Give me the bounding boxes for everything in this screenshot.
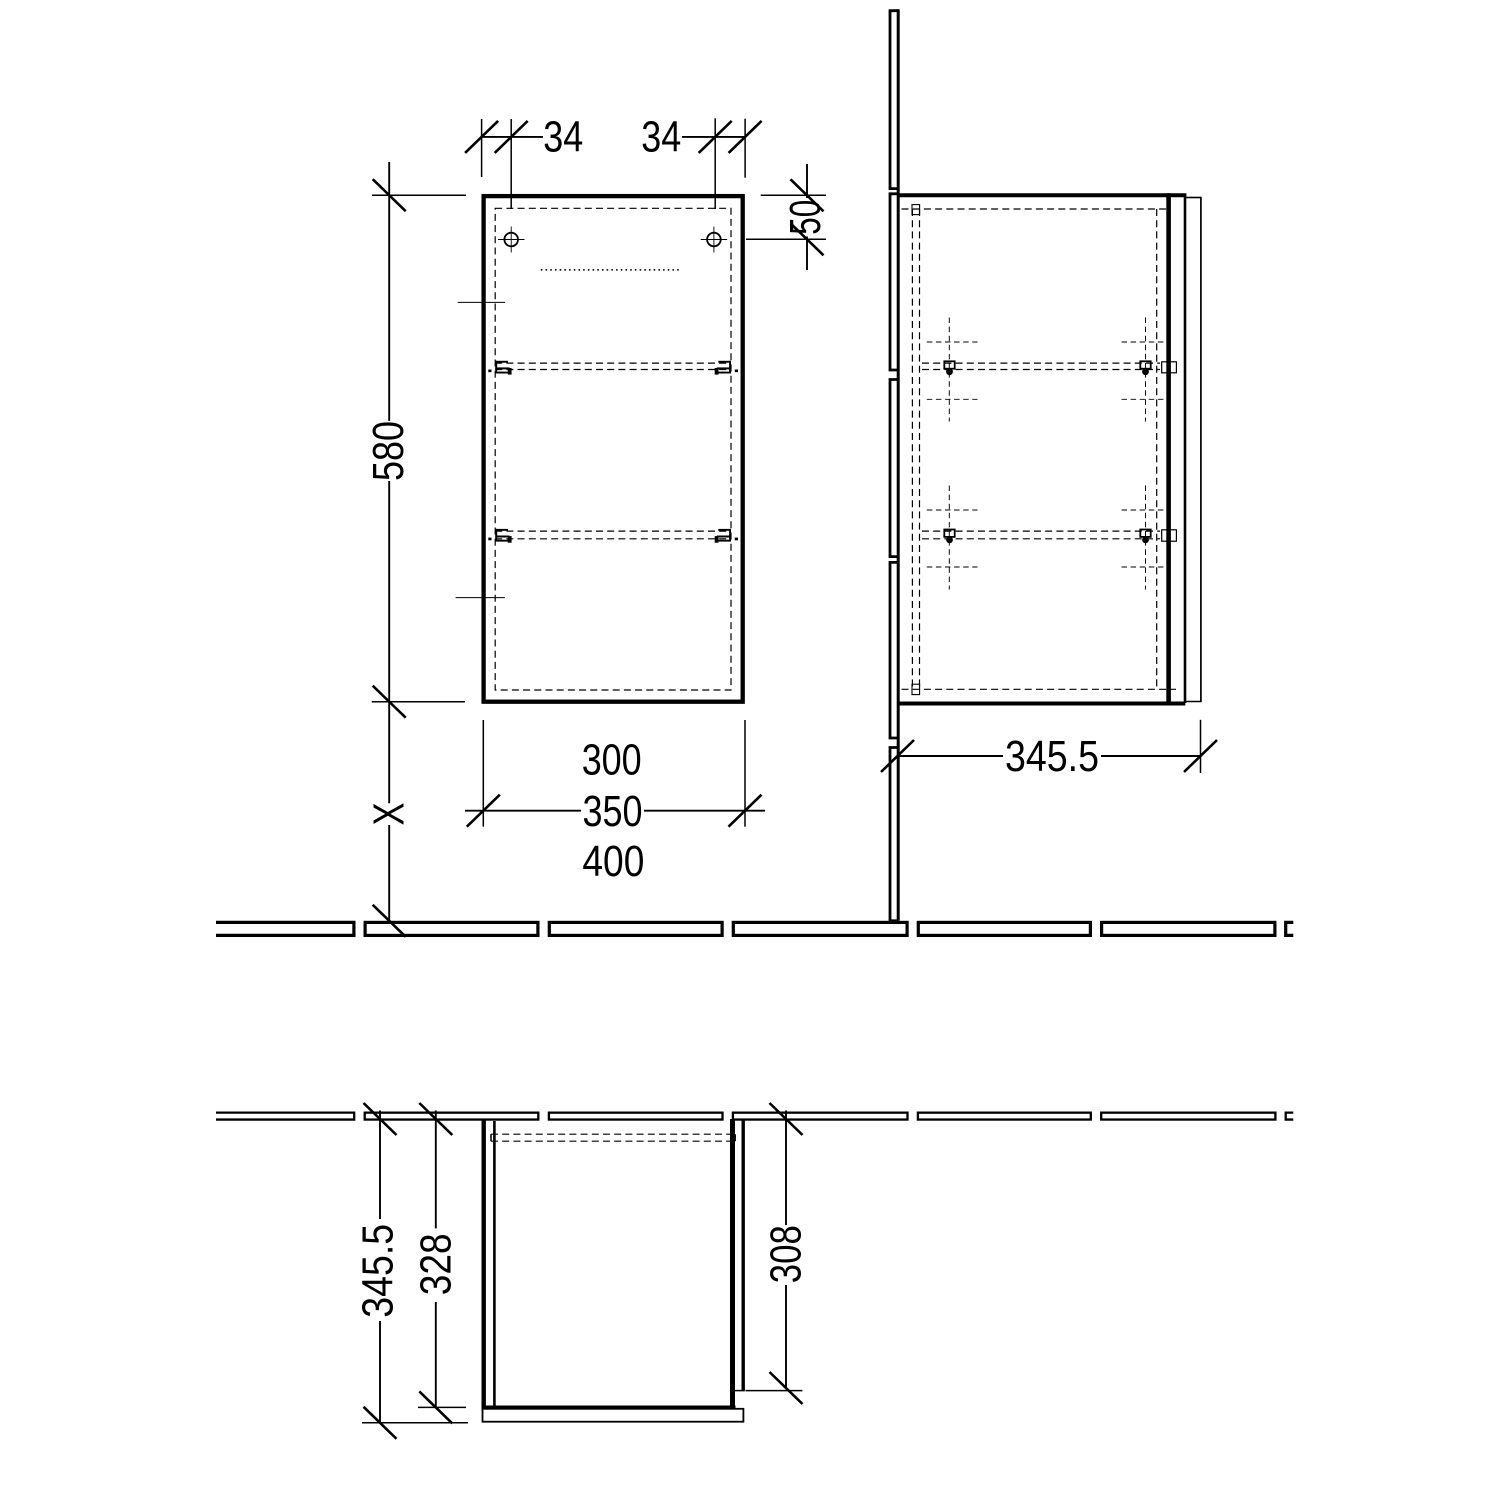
svg-text:34: 34 — [641, 113, 681, 162]
svg-text:400: 400 — [582, 837, 644, 886]
svg-text:300: 300 — [582, 736, 642, 785]
svg-text:328: 328 — [412, 1233, 461, 1295]
svg-text:345.5: 345.5 — [354, 1224, 403, 1318]
svg-text:345.5: 345.5 — [1005, 732, 1099, 781]
svg-text:350: 350 — [583, 787, 643, 836]
svg-text:580: 580 — [364, 421, 413, 481]
svg-text:50: 50 — [781, 200, 830, 235]
svg-text:308: 308 — [762, 1225, 811, 1283]
svg-text:X: X — [365, 803, 414, 826]
svg-text:34: 34 — [543, 113, 583, 162]
